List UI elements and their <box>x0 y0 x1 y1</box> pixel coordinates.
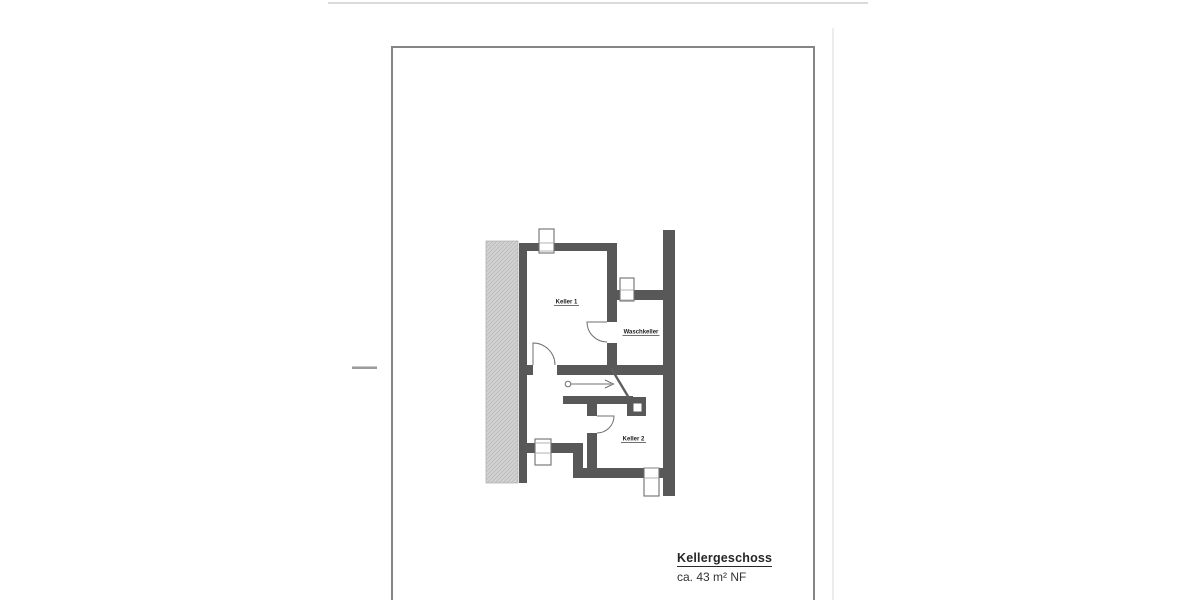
plan-area-text: ca. 43 m² NF <box>677 570 772 584</box>
door-swing-symbol <box>587 322 607 342</box>
room-label-keller-2: Keller 2 <box>623 437 645 443</box>
wall-segment <box>607 243 617 322</box>
wall-segment <box>557 365 675 375</box>
wall-segment <box>527 365 533 375</box>
room-label-waschkeller: Waschkeller <box>624 330 659 336</box>
right-divider-line <box>832 28 834 600</box>
title-block: Kellergeschoss ca. 43 m² NF <box>677 549 772 584</box>
door-swing-symbol <box>533 343 555 365</box>
screen: Keller 1 Waschkeller Keller 2 Kellergesc… <box>0 0 1200 600</box>
wall-segment <box>519 243 617 251</box>
chimney-symbol <box>627 397 646 416</box>
window-symbol <box>620 278 634 301</box>
room-label-keller-1: Keller 1 <box>556 300 578 306</box>
plan-title: Kellergeschoss <box>677 551 772 567</box>
wall-segment <box>663 230 675 496</box>
door-swings <box>533 322 614 433</box>
window-symbol <box>644 468 659 496</box>
wall-segment <box>563 396 633 404</box>
chimney-flue <box>634 404 642 412</box>
window-symbol <box>539 229 554 253</box>
earth-hatch <box>486 241 518 483</box>
wall-segment <box>587 404 597 416</box>
horizontal-dash <box>352 366 377 369</box>
top-divider-line <box>328 2 868 4</box>
stair-start-circle <box>565 381 571 387</box>
floorplan-drawing: Keller 1 Waschkeller Keller 2 <box>470 220 700 510</box>
door-swing-symbol <box>597 416 614 433</box>
